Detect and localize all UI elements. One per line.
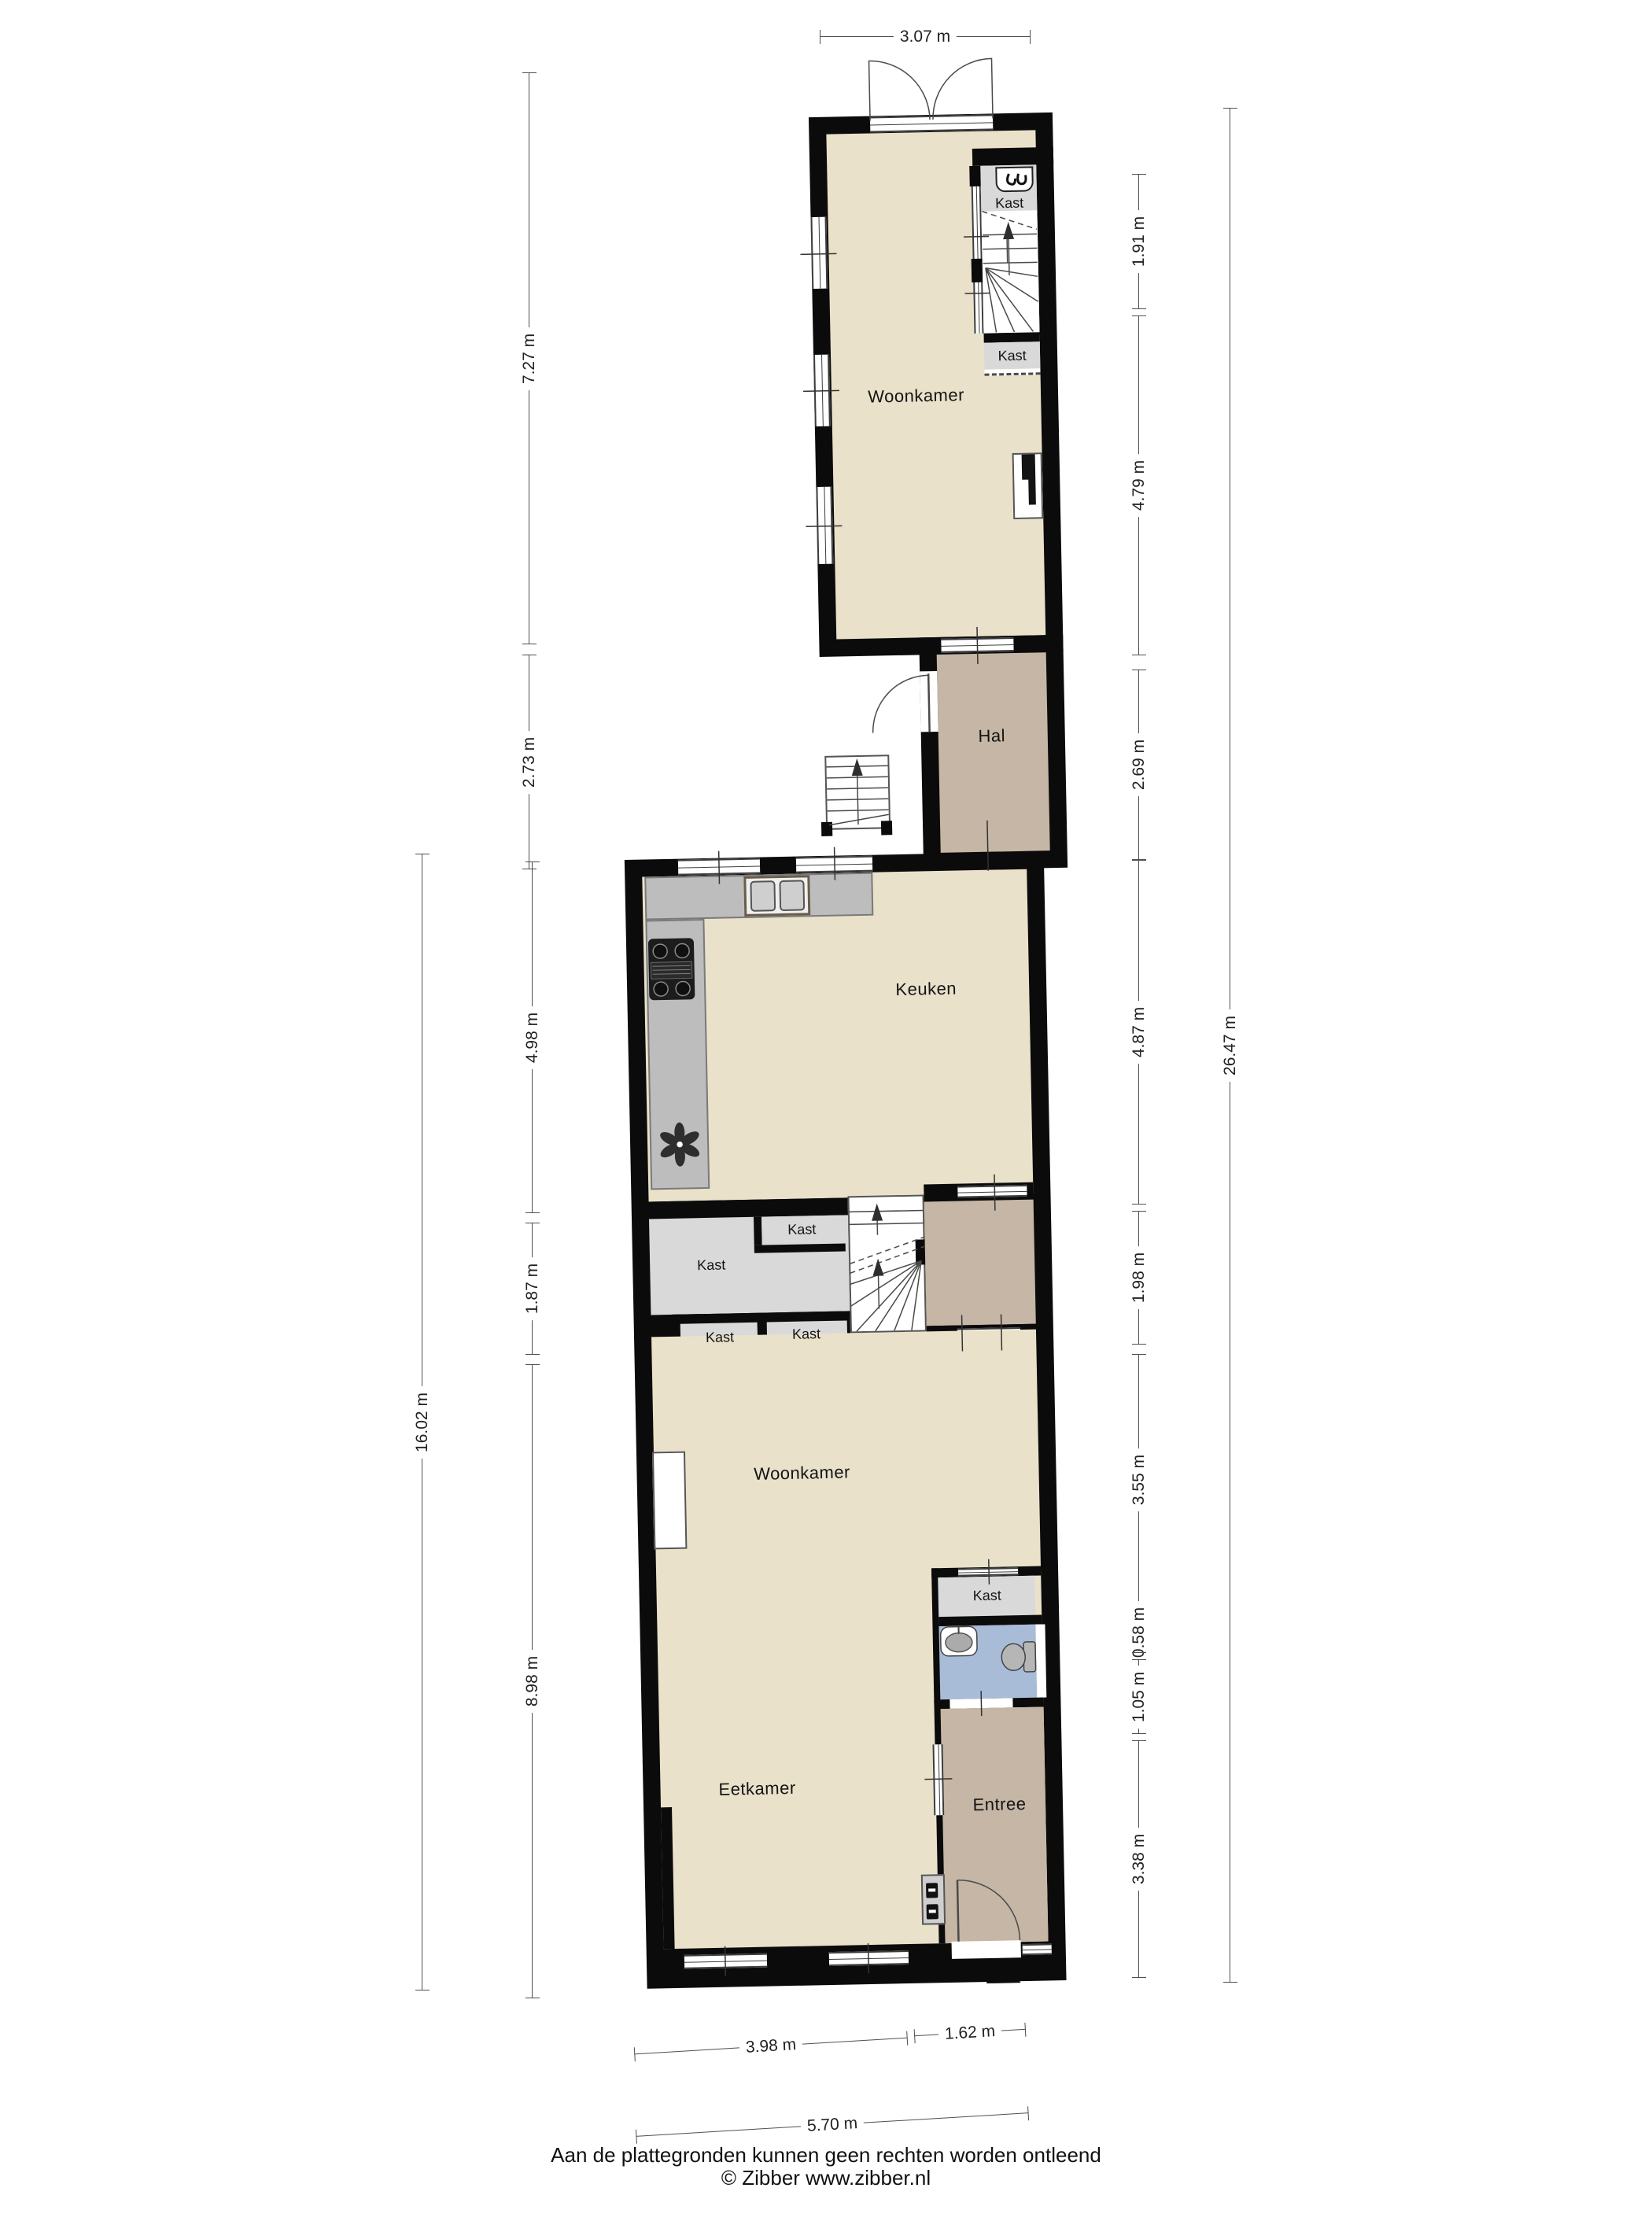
label-kast-onder-trap: Kast <box>985 347 1039 364</box>
label-kast-trap-boven: Kast <box>985 194 1034 212</box>
wall <box>754 1217 762 1245</box>
dim-right-355: 3.55 m <box>1138 1354 1139 1606</box>
label-kast-klein: Kast <box>779 1221 824 1238</box>
window <box>957 1185 1027 1198</box>
label-eetkamer: Eetkamer <box>686 1777 828 1801</box>
dim-left-898: 8.98 m <box>532 1364 533 1998</box>
label-keuken: Keuken <box>855 978 997 1002</box>
window <box>829 1950 909 1966</box>
dim-left-727: 7.27 m <box>529 72 529 644</box>
wall <box>916 1239 926 1264</box>
dim-left-498: 4.98 m <box>532 861 533 1213</box>
dim-right-487: 4.87 m <box>1138 860 1139 1205</box>
label-hal: Hal <box>953 725 1032 747</box>
stairs-boven <box>981 210 1039 333</box>
window <box>813 355 831 426</box>
hal-door-opening <box>920 671 938 732</box>
window-woonkamer-hal <box>941 637 1013 653</box>
dim-right-total: 26.47 m <box>1230 108 1230 1983</box>
label-woonkamer-boven: Woonkamer <box>832 384 1001 408</box>
meter-box <box>921 1874 946 1925</box>
dim-right-269: 2.69 m <box>1138 670 1139 860</box>
window <box>678 858 760 876</box>
front-door-opening <box>952 1940 1021 1959</box>
coat-hook-box <box>995 166 1034 192</box>
dim-right-105: 1.05 m <box>1138 1659 1139 1734</box>
window <box>810 217 828 289</box>
wall <box>972 147 1053 166</box>
corridor <box>924 1200 1036 1326</box>
footer-copyright: © Zibber www.zibber.nl <box>0 2166 1652 2190</box>
room-toilet <box>938 1625 1037 1699</box>
glass-partition <box>932 1744 944 1815</box>
closet-door-dashed <box>984 368 1040 375</box>
label-kast-onder-rechts: Kast <box>784 1326 829 1343</box>
sink-basin <box>750 880 776 912</box>
sink-basin <box>779 880 805 911</box>
floor-plan: Woonkamer Hal Keuken Woonkamer Eetkamer … <box>0 0 1652 2221</box>
floorplan-page: { "plan_title": "Begane grond plattegron… <box>0 0 1652 2203</box>
fireplace-niche <box>1012 452 1044 519</box>
french-doors-arcs <box>869 58 993 120</box>
window <box>684 1954 767 1969</box>
outdoor-stairs <box>824 754 891 830</box>
dim-right-479: 4.79 m <box>1138 315 1139 655</box>
label-kast-groot: Kast <box>688 1256 735 1274</box>
label-kast-bij-toilet: Kast <box>963 1587 1012 1604</box>
wall <box>821 822 832 836</box>
stove-cooktop <box>648 938 695 1000</box>
french-door-threshold <box>870 114 993 132</box>
dim-left-total: 16.02 m <box>422 854 422 1990</box>
footer-disclaimer: Aan de plattegronden kunnen geen rechten… <box>0 2143 1652 2168</box>
window <box>816 487 833 564</box>
room-hal <box>937 652 1050 853</box>
label-entree: Entree <box>950 1793 1049 1816</box>
dim-right-058: 0.58 m <box>1138 1612 1139 1653</box>
window <box>796 856 872 873</box>
dim-left-187: 1.87 m <box>532 1223 533 1355</box>
dim-right-338: 3.38 m <box>1138 1740 1139 1978</box>
dim-right-191: 1.91 m <box>1138 174 1139 309</box>
room-entree <box>941 1707 1049 1944</box>
wall <box>881 821 892 835</box>
wall-niche <box>652 1452 687 1550</box>
dim-top: 3.07 m <box>820 36 1031 37</box>
dim-left-273: 2.73 m <box>529 655 529 869</box>
dim-right-198: 1.98 m <box>1138 1211 1139 1345</box>
label-woonkamer: Woonkamer <box>719 1462 884 1485</box>
window <box>1023 1943 1052 1955</box>
shaft <box>1035 1624 1046 1697</box>
window <box>958 1567 1018 1577</box>
label-kast-onder-links: Kast <box>697 1329 743 1346</box>
stairs-midden <box>847 1194 926 1333</box>
